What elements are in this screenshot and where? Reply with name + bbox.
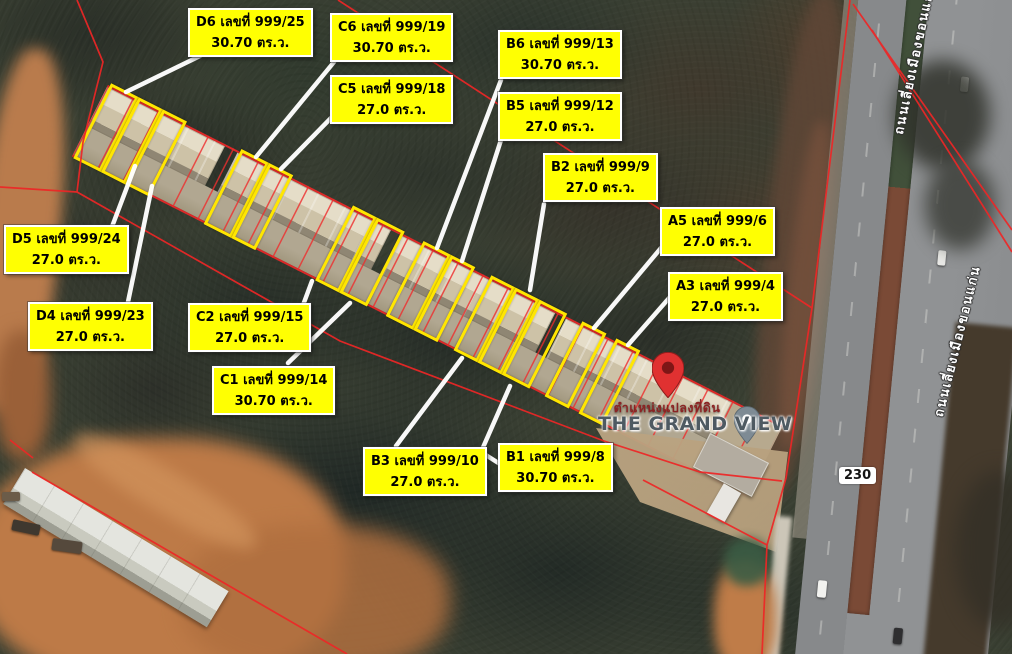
unit-label-line1: D4 เลขที่ 999/23 [36,310,145,323]
unit-label-B2: B2 เลขที่ 999/9 27.0 ตร.ว. [543,153,658,202]
unit-label-line2: 27.0 ตร.ว. [196,332,303,345]
unit-label-line2: 27.0 ตร.ว. [338,104,445,117]
grass-patch [724,538,770,586]
car [937,250,946,266]
unit-label-line2: 27.0 ตร.ว. [506,121,614,134]
unit-label-A5: A5 เลขที่ 999/6 27.0 ตร.ว. [660,207,775,256]
unit-label-line2: 27.0 ตร.ว. [551,182,650,195]
unit-label-B5: B5 เลขที่ 999/12 27.0 ตร.ว. [498,92,622,141]
unit-label-D4: D4 เลขที่ 999/23 27.0 ตร.ว. [28,302,153,351]
unit-label-line1: A5 เลขที่ 999/6 [668,215,767,228]
unit-label-line1: C6 เลขที่ 999/19 [338,21,445,34]
car [817,580,828,598]
unit-label-line1: B6 เลขที่ 999/13 [506,38,614,51]
unit-label-line1: B2 เลขที่ 999/9 [551,161,650,174]
unit-label-A3: A3 เลขที่ 999/4 27.0 ตร.ว. [668,272,783,321]
unit-label-line2: 30.70 ตร.ว. [196,37,305,50]
unit-label-line2: 27.0 ตร.ว. [676,301,775,314]
unit-label-line1: D6 เลขที่ 999/25 [196,16,305,29]
unit-label-line1: B1 เลขที่ 999/8 [506,451,605,464]
unit-label-line2: 27.0 ตร.ว. [36,331,145,344]
unit-label-line2: 30.70 ตร.ว. [506,59,614,72]
unit-label-line1: A3 เลขที่ 999/4 [676,280,775,293]
unit-label-C6: C6 เลขที่ 999/19 30.70 ตร.ว. [330,13,453,62]
unit-label-line1: C2 เลขที่ 999/15 [196,311,303,324]
unit-label-line2: 27.0 ตร.ว. [668,236,767,249]
tree-shadow [925,160,995,250]
unit-label-D6: D6 เลขที่ 999/25 30.70 ตร.ว. [188,8,313,57]
unit-label-line2: 30.70 ตร.ว. [506,472,605,485]
unit-label-C5: C5 เลขที่ 999/18 27.0 ตร.ว. [330,75,453,124]
unit-label-line2: 30.70 ตร.ว. [338,42,445,55]
location-pin-icon [652,352,684,398]
unit-label-C2: C2 เลขที่ 999/15 27.0 ตร.ว. [188,303,311,352]
unit-label-line1: B3 เลขที่ 999/10 [371,455,479,468]
route-number-badge: 230 [839,467,876,484]
unit-label-line1: C1 เลขที่ 999/14 [220,374,327,387]
car [893,628,903,645]
unit-label-line1: B5 เลขที่ 999/12 [506,100,614,113]
satellite-map: ตำแหน่งแปลงที่ดิน THE GRAND VIEW ถนนเลี่… [0,0,1012,654]
unit-label-line2: 30.70 ตร.ว. [220,395,327,408]
unit-label-B3: B3 เลขที่ 999/10 27.0 ตร.ว. [363,447,487,496]
unit-label-line1: C5 เลขที่ 999/18 [338,83,445,96]
parked-vehicle [2,492,20,501]
unit-label-line1: D5 เลขที่ 999/24 [12,233,121,246]
unit-label-B6: B6 เลขที่ 999/13 30.70 ตร.ว. [498,30,622,79]
project-name-label: THE GRAND VIEW [598,413,738,435]
unit-label-C1: C1 เลขที่ 999/14 30.70 ตร.ว. [212,366,335,415]
unit-label-D5: D5 เลขที่ 999/24 27.0 ตร.ว. [4,225,129,274]
unit-label-line2: 27.0 ตร.ว. [12,254,121,267]
unit-label-B1: B1 เลขที่ 999/8 30.70 ตร.ว. [498,443,613,492]
unit-label-line2: 27.0 ตร.ว. [371,476,479,489]
